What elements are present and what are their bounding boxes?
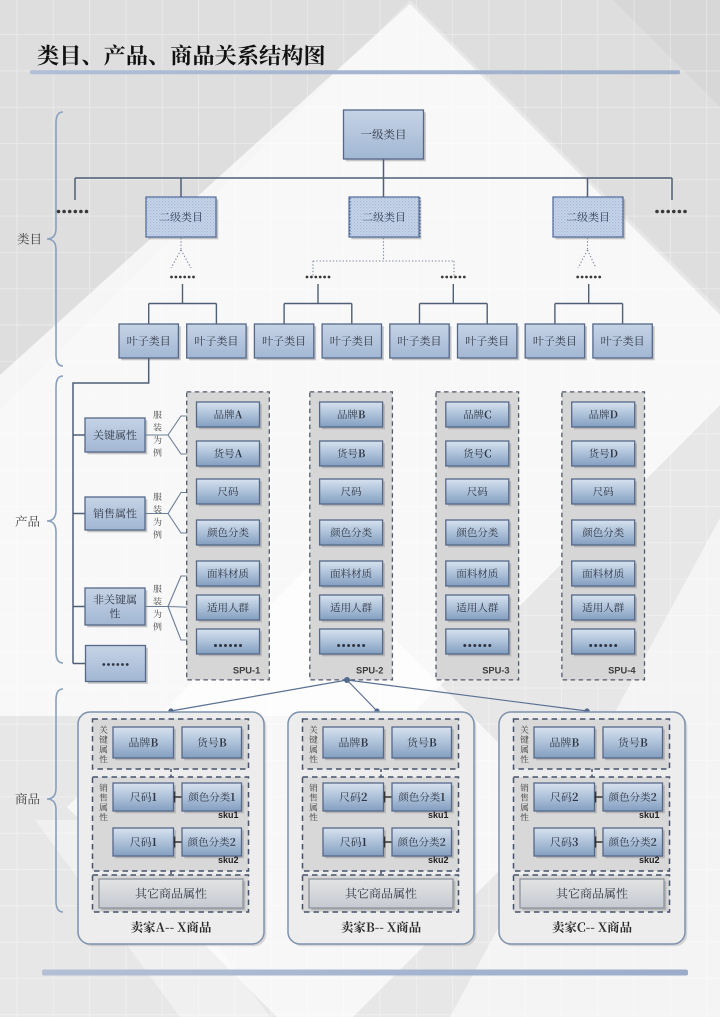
svg-text:SPU-4: SPU-4: [608, 666, 636, 676]
svg-text:SPU-1: SPU-1: [233, 666, 260, 676]
svg-text:sku2: sku2: [428, 855, 449, 865]
svg-text:sku2: sku2: [218, 855, 239, 865]
svg-text:sku1: sku1: [218, 810, 239, 820]
svg-text:sku1: sku1: [428, 810, 449, 820]
svg-text:sku1: sku1: [639, 810, 660, 820]
svg-text:sku2: sku2: [639, 855, 660, 865]
svg-text:SPU-2: SPU-2: [356, 666, 383, 676]
svg-text:SPU-3: SPU-3: [482, 666, 509, 676]
